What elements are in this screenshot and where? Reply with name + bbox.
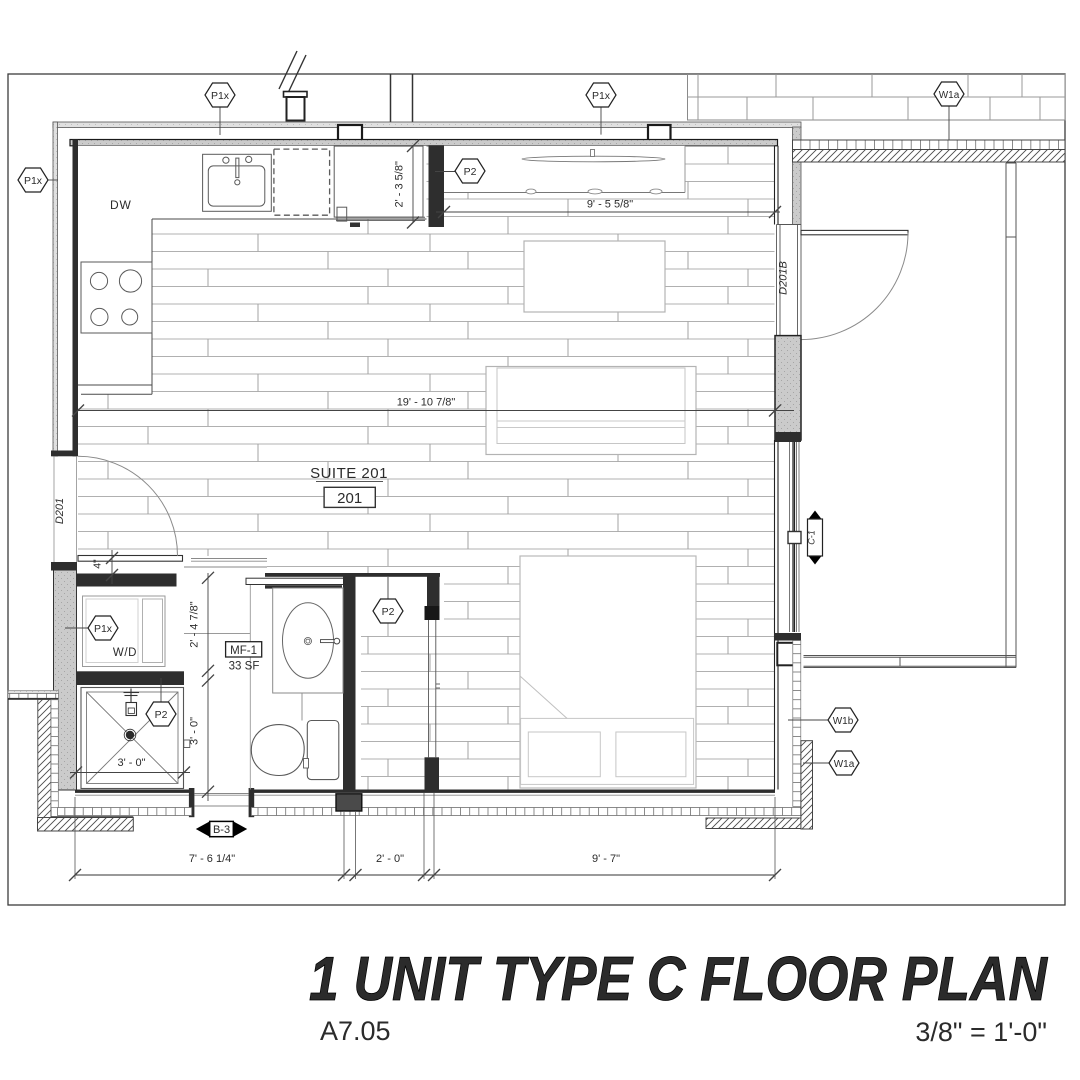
- svg-text:W1b: W1b: [833, 716, 854, 727]
- svg-text:9' - 7": 9' - 7": [592, 853, 620, 865]
- svg-text:MF-1: MF-1: [230, 645, 257, 657]
- svg-text:W1a: W1a: [939, 90, 960, 101]
- svg-text:201: 201: [337, 490, 362, 507]
- svg-text:D201: D201: [54, 498, 66, 524]
- svg-text:SUITE 201: SUITE 201: [310, 465, 388, 482]
- svg-text:P2: P2: [464, 166, 477, 178]
- svg-text:2' - 0": 2' - 0": [376, 853, 404, 865]
- svg-text:P1x: P1x: [211, 90, 230, 102]
- svg-text:1 UNIT TYPE C FLOOR PLAN: 1 UNIT TYPE C FLOOR PLAN: [309, 945, 1048, 1014]
- svg-text:C-1: C-1: [807, 530, 817, 545]
- svg-text:P1x: P1x: [592, 90, 611, 102]
- svg-text:W1a: W1a: [834, 759, 855, 770]
- svg-text:4": 4": [92, 559, 104, 569]
- svg-text:W/D: W/D: [113, 647, 137, 659]
- svg-text:19' - 10 7/8": 19' - 10 7/8": [397, 397, 456, 409]
- svg-text:3' - 0": 3' - 0": [189, 717, 201, 745]
- svg-text:B-3: B-3: [213, 824, 230, 836]
- svg-text:P1x: P1x: [94, 623, 113, 635]
- svg-text:P1x: P1x: [24, 175, 43, 187]
- svg-text:P2: P2: [382, 606, 395, 618]
- svg-text:7' - 6 1/4": 7' - 6 1/4": [189, 853, 235, 865]
- svg-text:2' - 3 5/8": 2' - 3 5/8": [394, 161, 406, 207]
- svg-text:9' - 5 5/8": 9' - 5 5/8": [587, 199, 633, 211]
- svg-text:33 SF: 33 SF: [229, 661, 260, 673]
- svg-text:P2: P2: [155, 709, 168, 721]
- svg-text:A7.05: A7.05: [320, 1016, 391, 1046]
- svg-text:2' - 4 7/8": 2' - 4 7/8": [189, 601, 201, 647]
- svg-text:DW: DW: [110, 198, 132, 212]
- svg-text:3/8" = 1'-0": 3/8" = 1'-0": [915, 1017, 1047, 1047]
- svg-text:3' - 0": 3' - 0": [117, 757, 145, 769]
- svg-text:D201B: D201B: [778, 261, 790, 295]
